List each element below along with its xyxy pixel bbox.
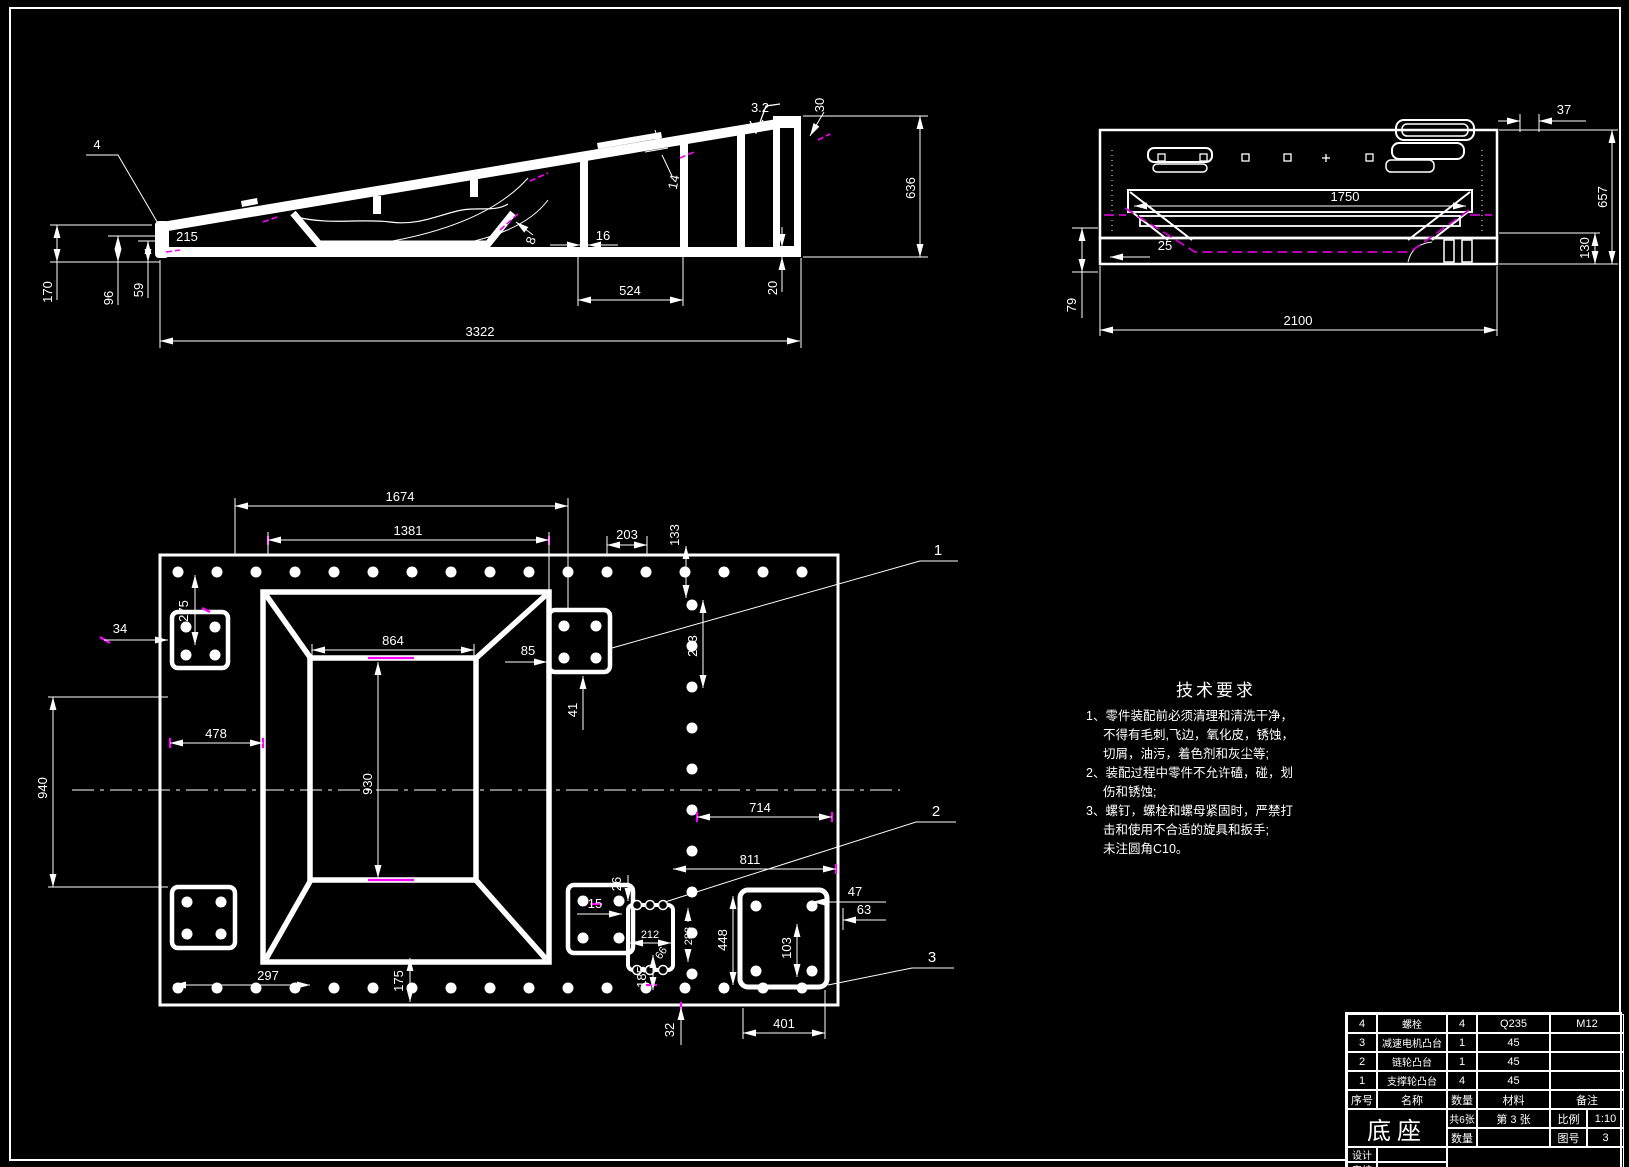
tech-line: 1、零件装配前必须清理和清洗干净，	[1086, 707, 1386, 726]
part-row-material: 45	[1477, 1033, 1550, 1052]
part-row-seq: 3	[1347, 1033, 1377, 1052]
dim-85: 85	[521, 643, 535, 658]
dim-185: 185	[634, 966, 649, 988]
bolt-holes-top-row	[173, 567, 808, 578]
empty-cell	[1377, 1162, 1447, 1167]
dim-215: 215	[176, 229, 198, 244]
dim-170: 170	[40, 281, 55, 303]
cad-drawing-page: { "colors": { "background": "#000000", "…	[0, 0, 1629, 1167]
dim-1674: 1674	[386, 489, 415, 504]
dim-66: 66	[653, 945, 670, 962]
dim-59: 59	[131, 283, 146, 297]
qty-label: 数量	[1447, 1128, 1477, 1147]
dim-133: 133	[667, 524, 682, 546]
empty-cell	[1477, 1128, 1550, 1147]
dim-16: 16	[596, 228, 610, 243]
dim-leader-4: 4	[93, 137, 100, 152]
dim-roughness: 3.2	[751, 100, 769, 115]
part-row-seq: 2	[1347, 1052, 1377, 1071]
drawing-title: 底座	[1347, 1109, 1447, 1147]
dim-212: 212	[641, 929, 659, 941]
part-row-name: 减速电机凸台	[1377, 1033, 1447, 1052]
header-qty: 数量	[1447, 1090, 1477, 1109]
leader-line-1	[612, 561, 958, 648]
dim-30: 30	[812, 98, 827, 112]
part-row-seq: 4	[1347, 1014, 1377, 1033]
part-row-qty: 1	[1447, 1052, 1477, 1071]
dim-203-v: 203	[685, 635, 700, 657]
header-remark: 备注	[1550, 1090, 1624, 1109]
scale-label: 比例	[1550, 1109, 1587, 1128]
dim-283: 283	[683, 927, 695, 945]
part-row-seq: 1	[1347, 1071, 1377, 1090]
dim-103: 103	[779, 937, 794, 959]
dim-636: 636	[903, 177, 918, 199]
drawing-canvas: 4 215 170 96 59 3322 524 16 20 14 3.2 30…	[0, 0, 1629, 1167]
design-label: 设计	[1347, 1147, 1377, 1162]
dim-63: 63	[857, 902, 871, 917]
dim-448: 448	[715, 929, 730, 951]
plan-view: 1674 1381 203 133 275 864 34 478 940 930…	[35, 489, 958, 1045]
dim-96: 96	[101, 291, 116, 305]
dim-25: 25	[1158, 238, 1172, 253]
tech-line: 不得有毛刺,飞边，氧化皮，锈蚀，	[1086, 726, 1386, 745]
header-name: 名称	[1377, 1090, 1447, 1109]
leader-label-1: 1	[934, 542, 942, 559]
drawing-no-value: 3	[1587, 1128, 1624, 1147]
dim-20: 20	[765, 281, 780, 295]
tech-requirements-title: 技术要求	[1086, 676, 1346, 701]
dim-275: 275	[176, 600, 191, 622]
dim-14: 14	[665, 173, 683, 190]
leader-line-3	[828, 968, 954, 985]
dim-930: 930	[360, 773, 375, 795]
leader-label-2: 2	[932, 803, 940, 820]
dim-32: 32	[662, 1023, 677, 1037]
dim-37: 37	[1557, 102, 1571, 117]
tech-line: 伤和锈蚀;	[1086, 783, 1386, 802]
dim-3322: 3322	[466, 324, 495, 339]
dim-524: 524	[619, 283, 641, 298]
title-block: 4 螺栓 4 Q235 M12 3 减速电机凸台 1 45 2 链轮凸台 1 4…	[1345, 1012, 1622, 1167]
dim-714: 714	[749, 800, 771, 815]
tech-line: 击和使用不合适的旋具和扳手;	[1086, 821, 1386, 840]
tech-line: 3、螺钉，螺栓和螺母紧固时，严禁打	[1086, 802, 1386, 821]
dim-47: 47	[848, 884, 862, 899]
dim-175: 175	[391, 970, 406, 992]
dim-940: 940	[35, 777, 50, 799]
leader-label-3: 3	[928, 949, 936, 966]
part-row-name: 支撑轮凸台	[1377, 1071, 1447, 1090]
boss-mid-right	[549, 610, 610, 672]
check-label: 审核	[1347, 1162, 1377, 1167]
dim-130: 130	[1577, 237, 1592, 259]
sheet-number: 第 3 张	[1477, 1109, 1550, 1128]
dim-1381: 1381	[394, 523, 423, 538]
bolt-holes-bottom-row	[173, 983, 808, 994]
dim-34: 34	[113, 621, 127, 636]
part-row-material: Q235	[1477, 1014, 1550, 1033]
plan-view-geometry	[72, 555, 900, 1005]
part-row-remark	[1550, 1033, 1624, 1052]
dim-864: 864	[382, 633, 404, 648]
part-row-remark	[1550, 1052, 1624, 1071]
dim-657: 657	[1595, 186, 1610, 208]
tech-line: 2、装配过程中零件不允许磕，碰，划	[1086, 764, 1386, 783]
dim-79: 79	[1064, 298, 1079, 312]
drawing-no-label: 图号	[1550, 1128, 1587, 1147]
side-view-geometry	[155, 116, 801, 258]
dim-angle-8: 8	[522, 234, 539, 246]
dim-1750: 1750	[1331, 189, 1360, 204]
dim-811: 811	[740, 852, 761, 867]
part-row-qty: 4	[1447, 1014, 1477, 1033]
dim-478: 478	[205, 726, 227, 741]
part-row-qty: 1	[1447, 1033, 1477, 1052]
sheet-total: 共6张	[1447, 1109, 1477, 1128]
dim-2100: 2100	[1284, 313, 1313, 328]
scale-value: 1:10	[1587, 1109, 1624, 1128]
signature-area	[1447, 1147, 1624, 1167]
part-row-material: 45	[1477, 1052, 1550, 1071]
tech-line: 未注圆角C10。	[1086, 840, 1386, 859]
header-seq: 序号	[1347, 1090, 1377, 1109]
part-row-qty: 4	[1447, 1071, 1477, 1090]
dim-15: 15	[588, 896, 602, 911]
tech-line: 切屑，油污，着色剂和灰尘等;	[1086, 745, 1386, 764]
dim-203-top: 203	[616, 527, 638, 542]
dim-41: 41	[565, 703, 580, 717]
part-row-material: 45	[1477, 1071, 1550, 1090]
part-row-name: 链轮凸台	[1377, 1052, 1447, 1071]
part-row-remark: M12	[1550, 1014, 1624, 1033]
header-material: 材料	[1477, 1090, 1550, 1109]
part-row-name: 螺栓	[1377, 1014, 1447, 1033]
part-row-remark	[1550, 1071, 1624, 1090]
end-view-dim-text: 37 1750 657 130 25 79 2100	[1064, 102, 1610, 328]
side-view: 4 215 170 96 59 3322 524 16 20 14 3.2 30…	[40, 98, 928, 348]
end-view: 37 1750 657 130 25 79 2100	[1064, 102, 1618, 336]
boss-bottom-left	[172, 887, 235, 948]
technical-requirements: 技术要求 1、零件装配前必须清理和清洗干净， 不得有毛刺,飞边，氧化皮，锈蚀， …	[1086, 676, 1386, 859]
empty-cell	[1377, 1147, 1447, 1162]
dim-297: 297	[257, 968, 279, 983]
dim-401: 401	[773, 1016, 795, 1031]
dim-26: 26	[609, 877, 624, 891]
